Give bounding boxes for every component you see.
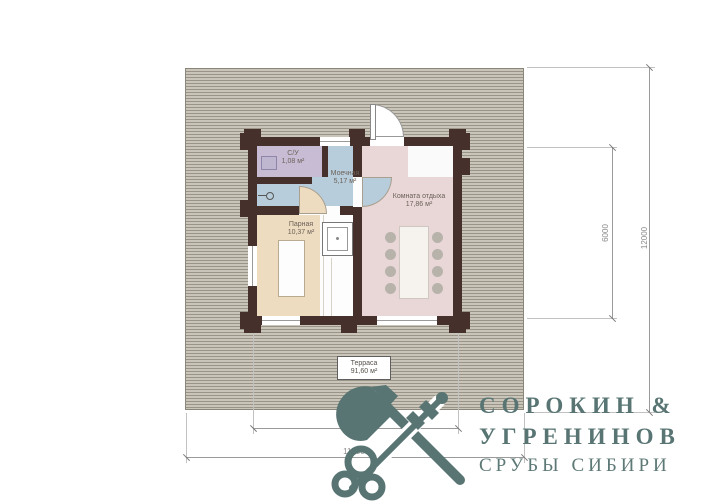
key-bow-ring [335,474,355,494]
wall-top [248,137,462,146]
chair [385,232,396,243]
logo-text-block: СОРОКИН & УГРЕНИНОВ СРУБЫ СИБИРИ [479,390,681,479]
floor-plan-canvas: 6000 12000 7000 11500 [0,0,712,502]
room-name: С/У [273,150,313,158]
dimension-line-6000 [612,147,613,318]
shower-fixture-icon [266,192,274,200]
window-line [320,141,350,142]
interior-wall [257,177,312,184]
sauna-bench [278,240,305,297]
room-area: 5,17 м² [322,178,368,186]
chair [385,283,396,294]
room-area: 1,08 м² [273,158,313,166]
dim-label-12000: 12000 [640,216,650,260]
log-stub [244,129,261,137]
window-line [377,320,437,321]
window-line [252,246,253,286]
shower-stem [258,195,266,196]
window-line [262,320,300,321]
label-room-parnaya: Парная 10,37 м² [279,221,323,237]
nook-line [331,258,332,316]
log-stub [449,325,466,333]
chair [385,249,396,260]
key-knob [436,392,448,404]
extension-line [527,318,617,319]
axe-handle [378,398,460,480]
interior-wall [353,207,362,316]
room-name: Комната отдыха [384,193,454,201]
extension-line [253,333,254,434]
room-area: 10,37 м² [279,229,323,237]
interior-wall [340,206,353,215]
key-bow-ring [362,477,382,497]
log-stub [240,200,248,217]
chair [385,266,396,277]
table [399,226,429,299]
label-room-komnata-otdyha: Комната отдыха 17,86 м² [384,193,454,209]
dim-label-6000: 6000 [601,213,611,253]
interior-wall [257,206,299,215]
logo-axe-and-key-icon [328,384,480,502]
label-room-su: С/У 1,08 м² [273,150,313,166]
log-stub [341,325,357,333]
wall-right [453,137,462,325]
logo-line-1: СОРОКИН & [479,390,681,421]
chair [432,266,443,277]
chair [432,249,443,260]
chair [432,232,443,243]
extension-line [527,147,617,148]
label-room-moechnaya: Моечная 5,17 м² [322,170,368,186]
log-stub [349,129,365,137]
terrace-area: 91,60 м² [338,368,390,376]
log-stub [462,158,470,175]
logo-line-2: УГРЕНИНОВ [479,421,681,452]
counter-block [408,146,453,177]
terrace-label-box: Терраса 91,60 м² [337,356,391,380]
extension-line [527,67,655,68]
chair [432,283,443,294]
entrance-door-leaf [370,104,376,140]
terrace-name: Терраса [338,360,390,368]
room-name: Моечная [322,170,368,178]
log-stub [244,325,261,333]
room-name: Парная [279,221,323,229]
logo-tagline: СРУБЫ СИБИРИ [479,452,681,479]
log-stub [449,129,466,137]
stove-dot [336,237,339,240]
wall-left [248,137,257,325]
room-area: 17,86 м² [384,201,454,209]
